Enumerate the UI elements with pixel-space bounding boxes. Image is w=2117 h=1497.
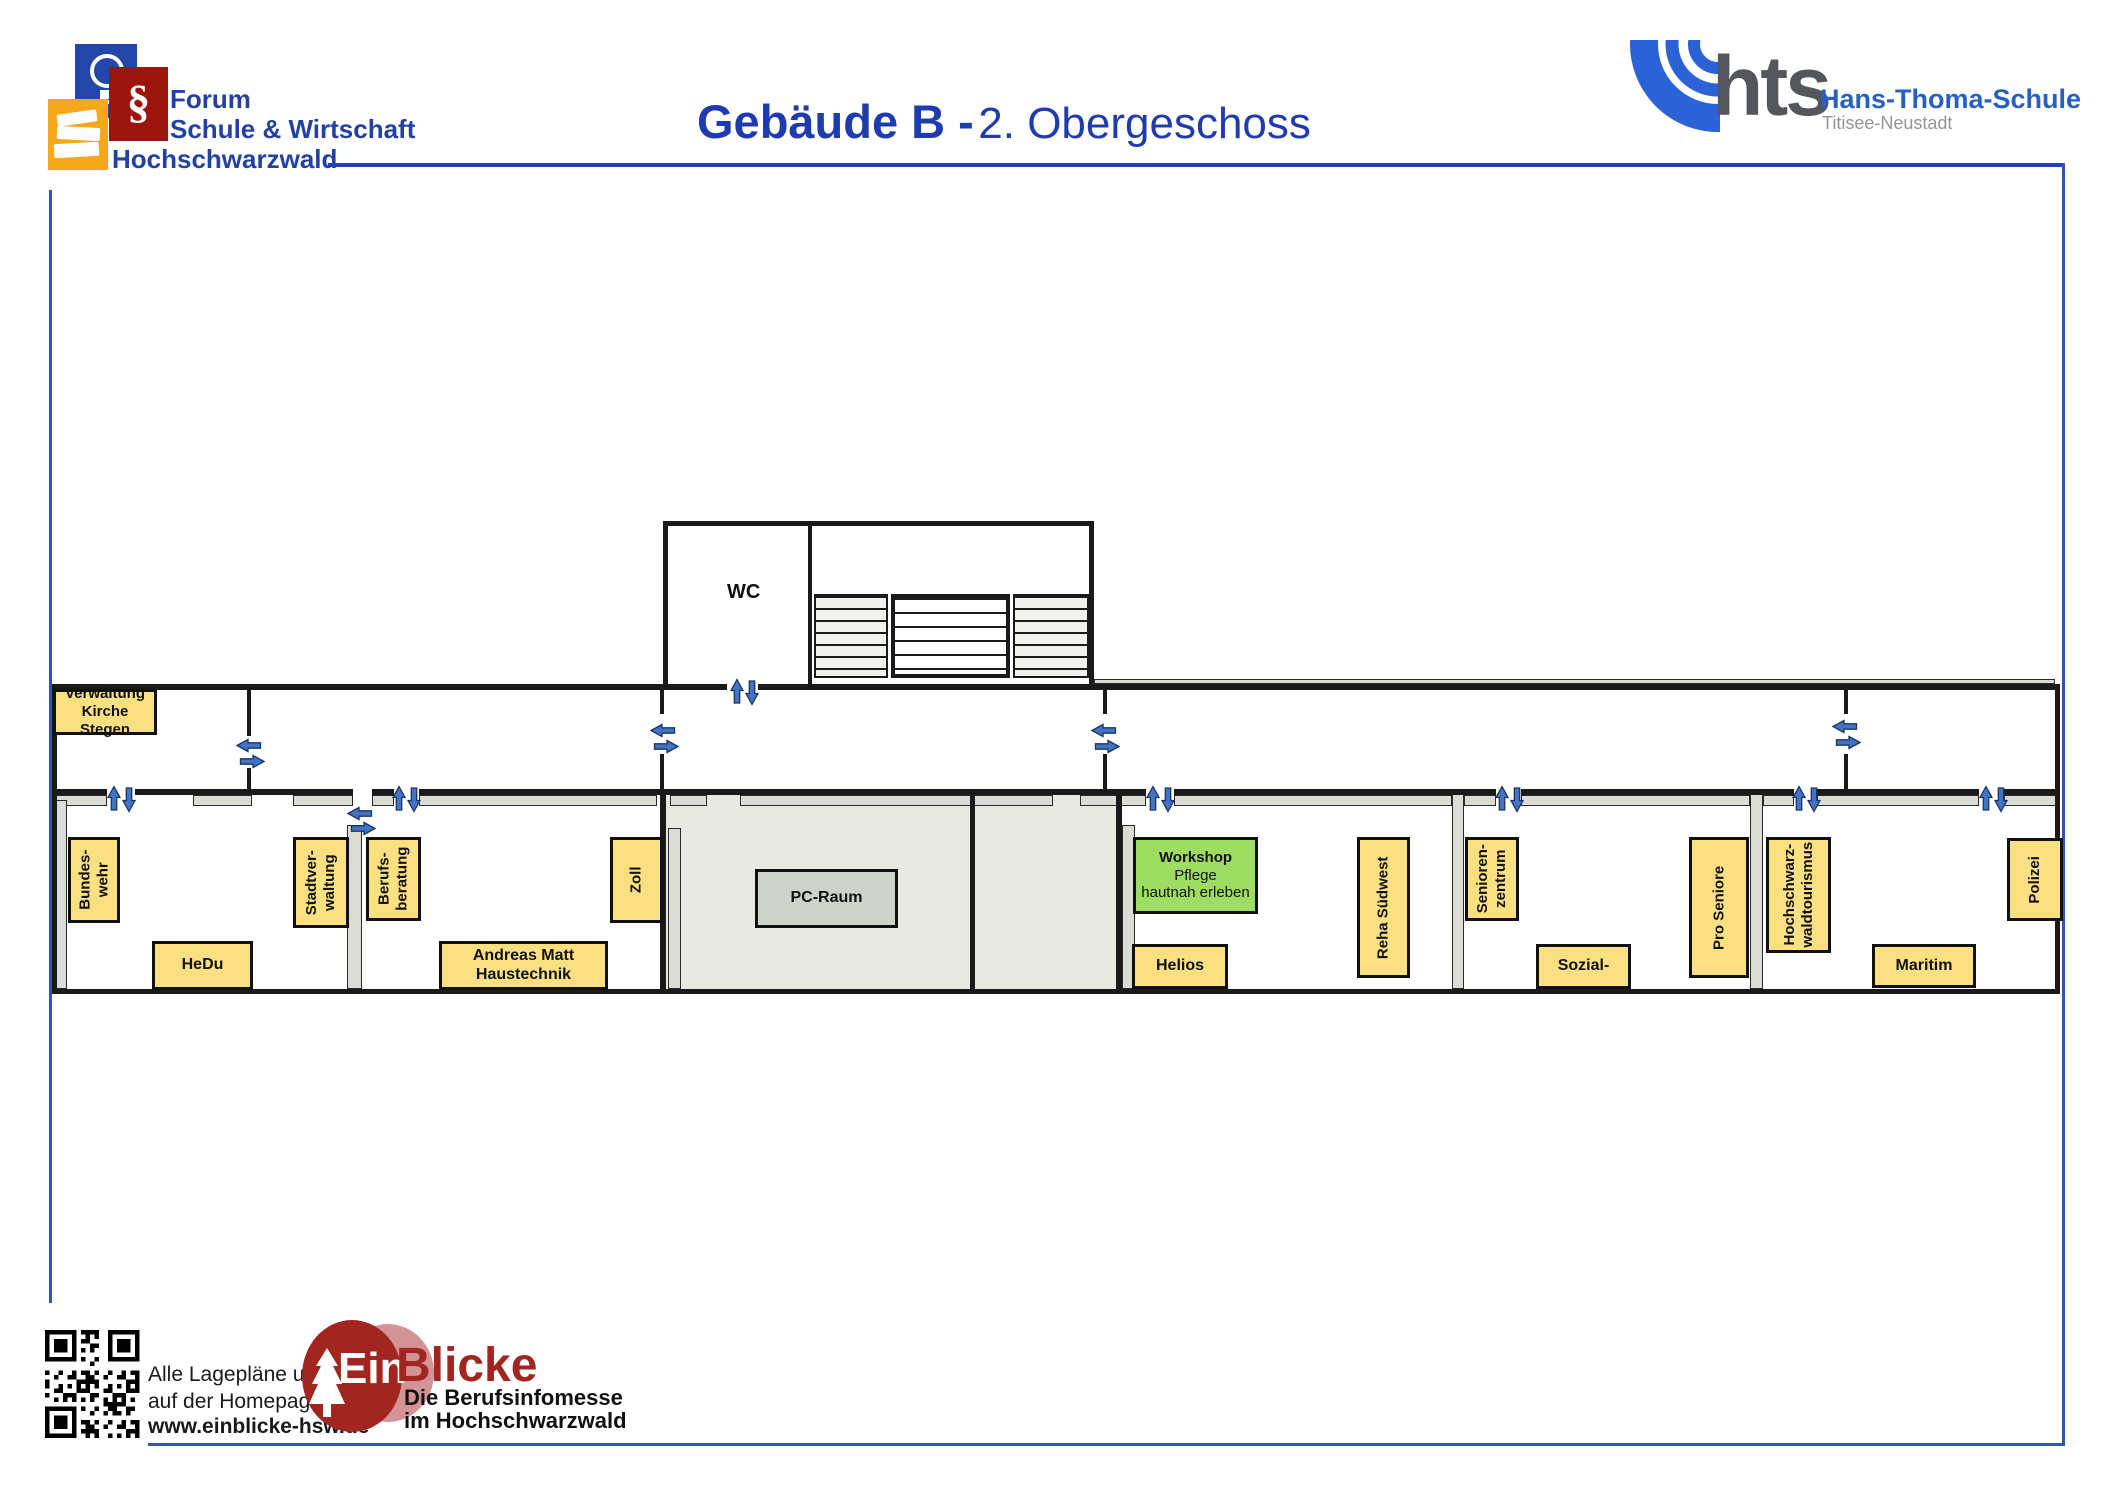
- forum-logo-red-square: §: [109, 67, 168, 141]
- wall-segment: [1452, 792, 1464, 989]
- left-arrow-icon: [236, 738, 262, 753]
- room-label-hochschwarzwaldtourismus: Hochschwarz-waldtourismus: [1766, 837, 1831, 953]
- down-arrow-icon: [1994, 786, 2009, 812]
- wall-segment: [808, 521, 812, 687]
- paragraph-icon: §: [109, 75, 168, 129]
- wall-segment: [1116, 789, 1122, 994]
- room-fill: [973, 790, 1119, 989]
- wall-segment: [970, 789, 975, 994]
- down-arrow-icon: [745, 679, 760, 705]
- forum-logo-line1: Forum: [170, 84, 251, 114]
- forum-logo-yellow-square: [48, 99, 108, 170]
- room-label-workshop-pflege: Workshop Pflegehautnah erleben: [1133, 837, 1258, 914]
- up-arrow-icon: [1146, 785, 1161, 811]
- wall-segment: [1763, 795, 1794, 806]
- room-label-bundeswehr: Bundes-wehr: [68, 837, 120, 923]
- room-label-pc-raum: PC-Raum: [755, 869, 898, 928]
- wall-segment: [1080, 795, 1146, 806]
- frame-bottom-line: [148, 1443, 2065, 1446]
- wall-segment: [52, 989, 2060, 994]
- down-arrow-icon: [122, 786, 137, 812]
- room-label-berufsberatung: Berufs-beratung: [366, 837, 421, 921]
- down-arrow-icon: [1807, 786, 1822, 812]
- left-arrow-icon: [1832, 719, 1858, 734]
- wall-segment: [1464, 795, 1496, 806]
- wall-segment: [1103, 754, 1107, 791]
- hts-name: Hans-Thoma-Schule: [1820, 84, 2081, 115]
- room-label-hedu: HeDu: [152, 941, 253, 990]
- down-arrow-icon: [1161, 786, 1176, 812]
- wall-segment: [193, 795, 252, 806]
- wall-segment: [419, 795, 657, 806]
- wall-segment: [1103, 690, 1107, 714]
- room-label-seniorenzentrum: Senioren-zentrum: [1465, 837, 1519, 921]
- right-arrow-icon: [1835, 735, 1861, 750]
- up-arrow-icon: [1792, 785, 1807, 811]
- room-label-andreas-matt-haustechnik: Andreas MattHaustechnik: [439, 941, 608, 990]
- wall-segment: [1521, 795, 1750, 806]
- einblicke-sub1: Die Berufsinfomesse: [404, 1386, 623, 1409]
- room-label-pro-seniore: Pro Seniore: [1689, 837, 1749, 978]
- wall-segment: [419, 789, 1146, 795]
- wall-segment: [668, 828, 681, 989]
- wall-segment: [247, 768, 251, 792]
- room-label-reha-suedwest: Reha Südwest: [1357, 837, 1410, 978]
- wall-segment: [247, 690, 251, 736]
- left-arrow-icon: [347, 806, 373, 821]
- wall-segment: [135, 789, 353, 795]
- hts-arcs-icon: [1628, 40, 1720, 132]
- wc-room-label: WC: [727, 581, 760, 604]
- wall-segment: [1844, 690, 1848, 714]
- hts-abbr: hts: [1712, 44, 1829, 128]
- right-arrow-icon: [1094, 739, 1120, 754]
- wall-segment: [2004, 795, 2057, 806]
- left-arrow-icon: [650, 723, 676, 738]
- up-arrow-icon: [1979, 785, 1994, 811]
- room-label-stadtverwaltung: Stadtver-waltung: [293, 837, 349, 928]
- wall-segment: [1174, 789, 1496, 795]
- wall-segment: [52, 789, 107, 795]
- einblicke-sub2: im Hochschwarzwald: [404, 1409, 627, 1432]
- room-label-polizei: Polizei: [2007, 838, 2063, 921]
- room-label-helios: Helios: [1132, 944, 1228, 989]
- wall-segment: [740, 795, 1053, 806]
- up-arrow-icon: [730, 678, 745, 704]
- wall-segment: [1521, 789, 1794, 795]
- header-divider-line: [328, 163, 2065, 167]
- up-arrow-icon: [107, 785, 122, 811]
- qr-code: [45, 1330, 140, 1443]
- down-arrow-icon: [1510, 786, 1525, 812]
- wall-segment: [663, 521, 1094, 526]
- room-label-verwaltung-kirche-stegen: VerwaltungKirche Stegen: [53, 689, 157, 735]
- wall-segment: [1750, 792, 1763, 989]
- down-arrow-icon: [407, 786, 422, 812]
- wall-segment: [1089, 521, 1094, 687]
- page-title: Gebäude B - 2. Obergeschoss: [697, 94, 1311, 149]
- room-label-zoll: Zoll: [610, 837, 663, 923]
- homepage-note-line2: auf der Homepage: [148, 1390, 322, 1414]
- wall-segment: [660, 754, 664, 791]
- wall-segment: [758, 684, 2060, 690]
- wall-segment: [293, 795, 353, 806]
- up-arrow-icon: [1495, 785, 1510, 811]
- stair-flight-right: [1013, 594, 1089, 678]
- forum-logo-line2: Schule & Wirtschaft: [170, 114, 415, 144]
- frame-right-line: [2062, 163, 2065, 1446]
- wall-segment: [347, 825, 362, 989]
- floorplan-flyer-page: § Forum Schule & Wirtschaft Hochschwarzw…: [0, 0, 2117, 1497]
- hts-subtitle: Titisee-Neustadt: [1822, 113, 1952, 134]
- room-label-sozial: Sozial-: [1536, 944, 1631, 989]
- wall-segment: [660, 690, 664, 714]
- wall-segment: [1174, 795, 1452, 806]
- page-title-building: Gebäude B -: [697, 95, 974, 148]
- stair-flight-left: [814, 594, 888, 678]
- page-title-floor: 2. Obergeschoss: [978, 99, 1311, 148]
- wall-segment: [663, 521, 668, 687]
- stair-flight-middle: [891, 594, 1010, 678]
- wall-segment: [2004, 789, 2060, 795]
- right-arrow-icon: [239, 754, 265, 769]
- right-arrow-icon: [350, 821, 376, 836]
- right-arrow-icon: [653, 739, 679, 754]
- room-label-maritim: Maritim: [1872, 944, 1976, 988]
- left-arrow-icon: [1091, 723, 1117, 738]
- up-arrow-icon: [392, 785, 407, 811]
- forum-logo-line3: Hochschwarzwald: [112, 144, 337, 174]
- wall-segment: [1844, 754, 1848, 791]
- wall-segment: [670, 795, 707, 806]
- wall-segment: [1817, 789, 1979, 795]
- wall-segment: [1817, 795, 1979, 806]
